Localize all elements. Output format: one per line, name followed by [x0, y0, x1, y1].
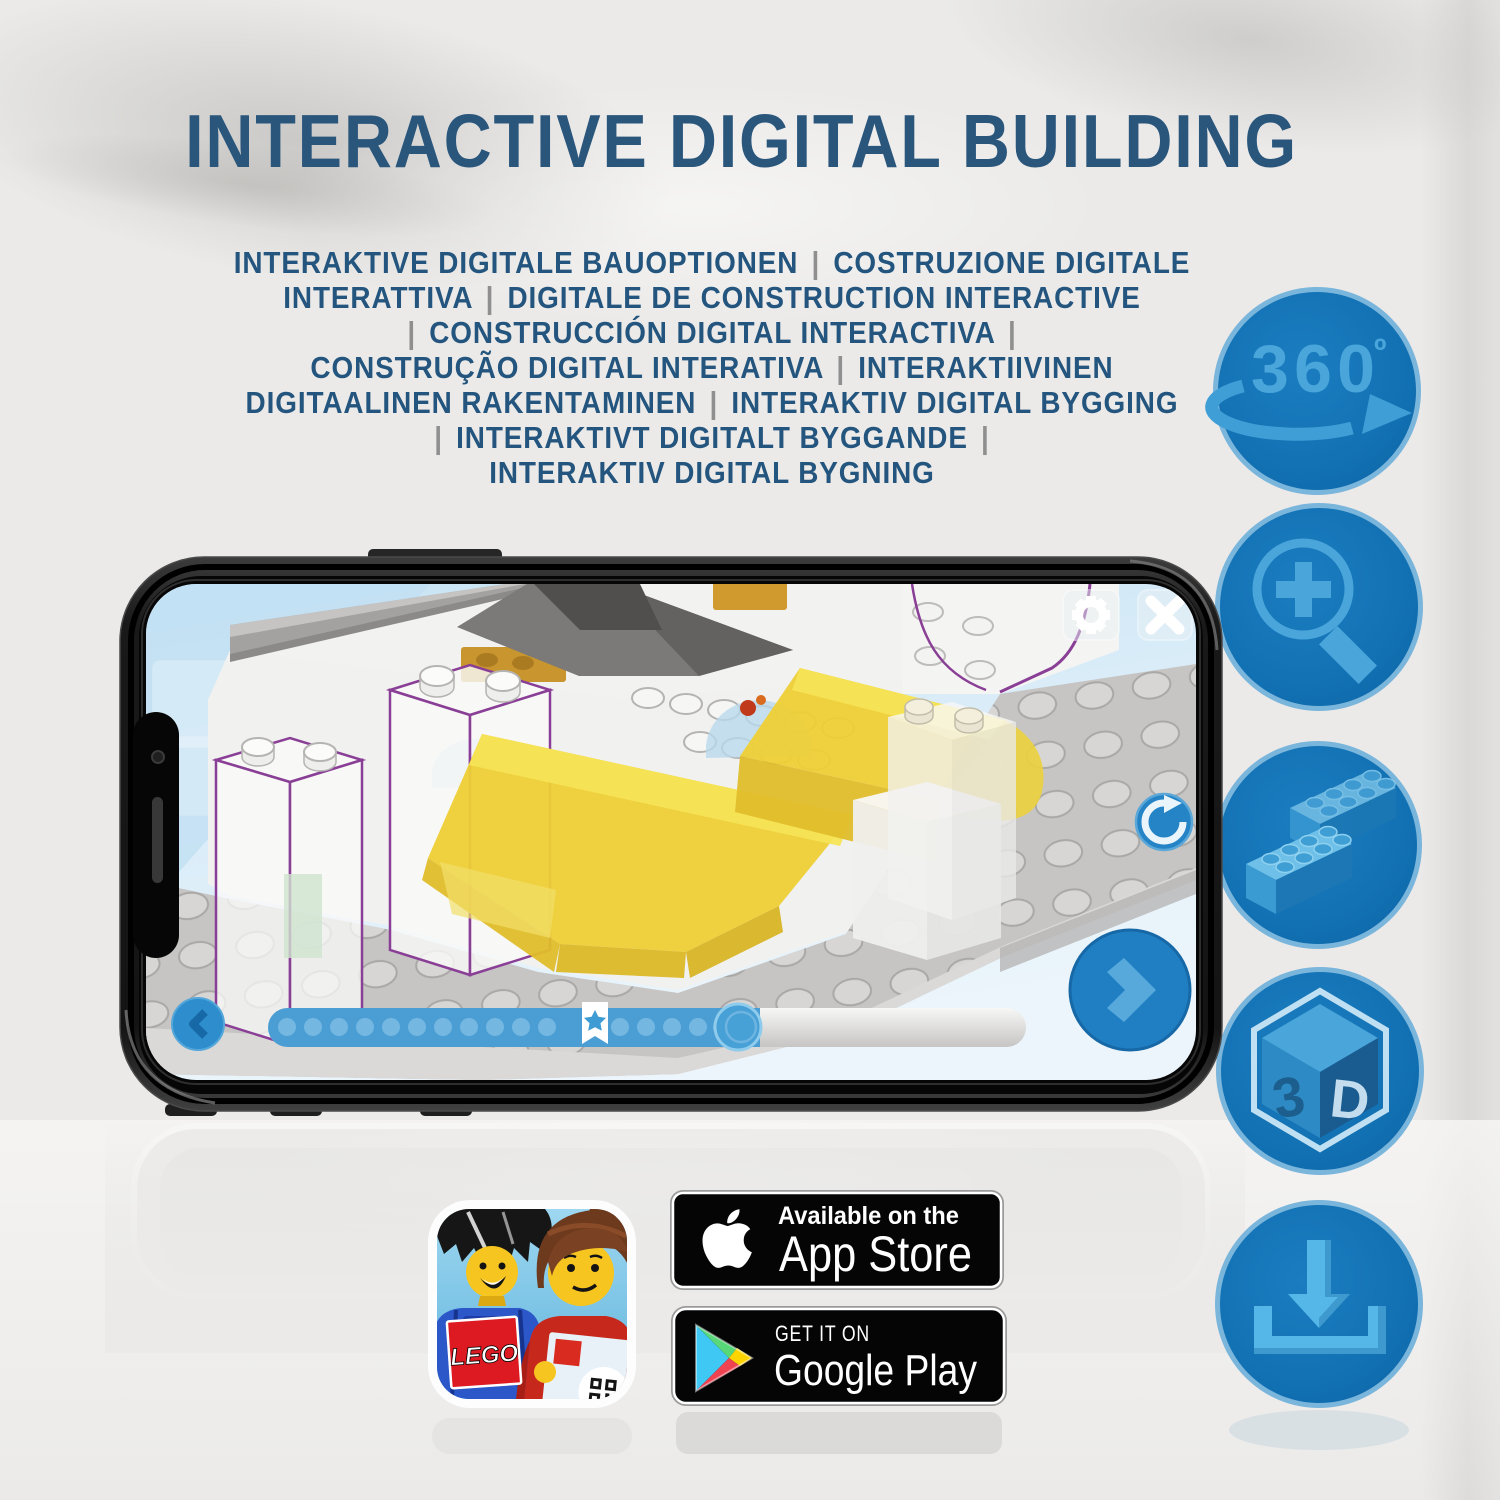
svg-text:Google Play: Google Play — [774, 1346, 977, 1395]
svg-text:LEGO: LEGO — [449, 1340, 519, 1372]
svg-text:º: º — [1374, 332, 1386, 370]
svg-text:App Store: App Store — [779, 1226, 972, 1282]
svg-text:D: D — [1327, 1068, 1372, 1132]
svg-text:GET IT ON: GET IT ON — [775, 1321, 870, 1346]
